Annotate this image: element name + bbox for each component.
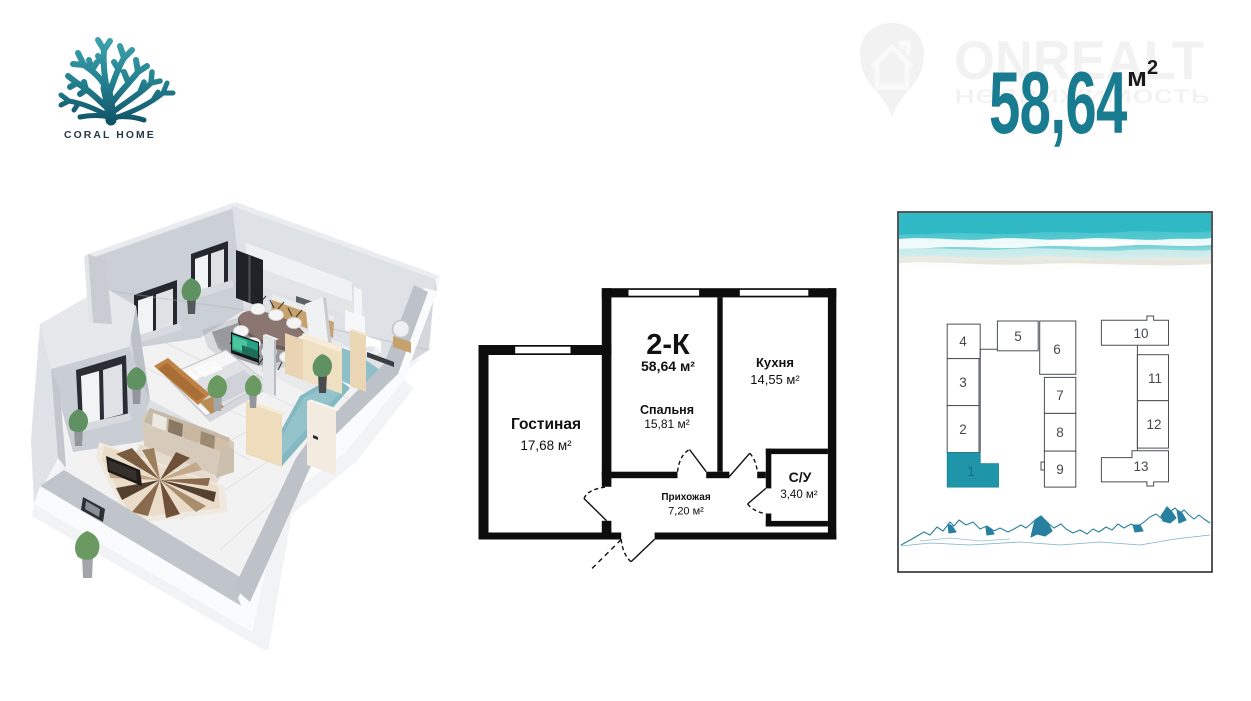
svg-text:С/У: С/У bbox=[789, 469, 812, 485]
svg-text:Гостиная: Гостиная bbox=[511, 416, 581, 433]
svg-text:6: 6 bbox=[1053, 342, 1061, 357]
svg-text:10: 10 bbox=[1133, 326, 1148, 341]
svg-text:2: 2 bbox=[959, 422, 967, 437]
svg-text:Спальня: Спальня bbox=[640, 403, 694, 417]
svg-text:CORAL HOME: CORAL HOME bbox=[64, 130, 156, 141]
svg-text:Прихожая: Прихожая bbox=[661, 492, 711, 503]
svg-text:15,81 м²: 15,81 м² bbox=[644, 417, 690, 431]
svg-text:4: 4 bbox=[959, 334, 967, 349]
svg-text:5: 5 bbox=[1014, 329, 1022, 344]
svg-text:58,64 м²: 58,64 м² bbox=[641, 358, 695, 374]
svg-text:14,55 м²: 14,55 м² bbox=[750, 372, 800, 387]
svg-text:Кухня: Кухня bbox=[756, 355, 794, 370]
svg-text:1: 1 bbox=[967, 464, 975, 479]
svg-text:3: 3 bbox=[959, 375, 967, 390]
svg-text:7: 7 bbox=[1056, 388, 1064, 403]
svg-text:2-К: 2-К bbox=[646, 329, 690, 361]
svg-text:7,20 м²: 7,20 м² bbox=[668, 506, 704, 518]
svg-text:13: 13 bbox=[1133, 459, 1148, 474]
svg-text:9: 9 bbox=[1056, 462, 1064, 477]
svg-text:11: 11 bbox=[1148, 371, 1162, 386]
svg-text:8: 8 bbox=[1056, 425, 1064, 440]
svg-text:12: 12 bbox=[1146, 417, 1161, 432]
svg-text:3,40 м²: 3,40 м² bbox=[780, 489, 817, 501]
svg-text:17,68 м²: 17,68 м² bbox=[520, 438, 572, 453]
